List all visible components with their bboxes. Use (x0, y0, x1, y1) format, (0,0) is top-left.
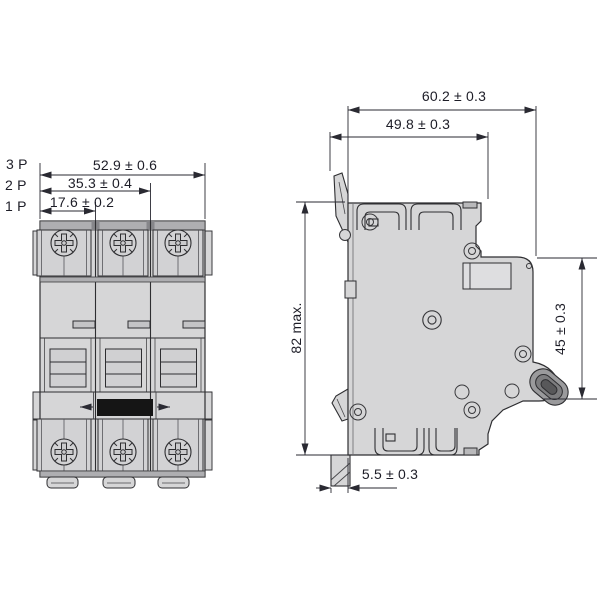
front-dimension-lines (40, 163, 205, 221)
side-view-drawing (296, 106, 597, 493)
front-view-drawing (33, 163, 212, 488)
phillips-screw-icon (51, 230, 77, 256)
toggle-handle-bar (97, 399, 153, 416)
bottom-tabs (47, 477, 189, 488)
side-body-outline (348, 203, 559, 455)
phillips-screw-icon (51, 439, 77, 465)
label-window (463, 263, 511, 289)
switch-windows (50, 349, 197, 387)
phillips-screw-icon (165, 230, 191, 256)
din-clip-foot (331, 455, 350, 486)
phillips-screw-icon (110, 230, 136, 256)
phillips-screw-icon (165, 439, 191, 465)
drawing-canvas (0, 0, 604, 604)
dimension-drawing-page: 3 P 2 P 1 P 52.9 ± 0.6 35.3 ± 0.4 17.6 ±… (0, 0, 604, 604)
front-slots (73, 321, 205, 328)
phillips-screw-icon (110, 439, 136, 465)
